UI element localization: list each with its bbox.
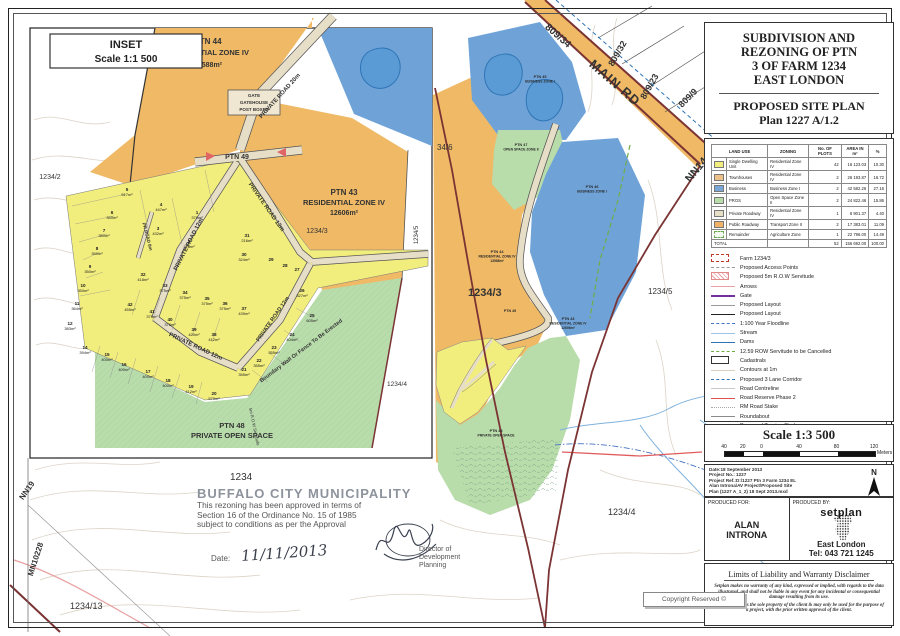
dam-shape-1 xyxy=(485,54,523,95)
legend-item: Stream xyxy=(711,328,887,337)
table-row: RemainderAgriculture Zone122 796.0014.49 xyxy=(712,230,887,240)
swatch-business xyxy=(714,185,724,192)
inset-plan: GATE GATEHOUSE POST BOXES PTN 44 RESIDEN… xyxy=(30,16,432,458)
dam-shape-2 xyxy=(526,79,562,120)
zone-label-ptn48: PTN 48 xyxy=(490,429,503,433)
table-row: Single Dwelling UnitResidential Zone IV4… xyxy=(712,158,887,171)
scale-bar-segments xyxy=(724,451,876,457)
parcel-1234-3: 1234/3 xyxy=(468,287,502,299)
parcel-1234-5: 1234/5 xyxy=(648,287,673,296)
lot-area: 400m² xyxy=(142,374,154,379)
lot-area: 324m² xyxy=(238,257,250,262)
arrows-symbol xyxy=(711,286,735,287)
scale-tick: 20 xyxy=(740,444,746,450)
legend-item: Dams xyxy=(711,338,887,347)
scale-panel: Scale 1:3 500 40 20 0 40 80 120 Meters xyxy=(704,424,894,462)
lot-area: 327m² xyxy=(296,293,308,298)
lot-area: 400m² xyxy=(101,357,113,362)
site-plan-document: MAIN RD 809/34 809/32 809/23 809/9 NN14 … xyxy=(0,0,900,636)
plan-title-line: SUBDIVISION AND xyxy=(705,31,893,45)
zone-label-ptn49: PTN 49 xyxy=(504,309,516,313)
lot-number: 29 xyxy=(268,257,274,262)
lot-area: 375m² xyxy=(179,295,191,300)
gate-label: GATE xyxy=(248,93,260,98)
title-divider xyxy=(719,93,879,94)
zone-label-ptn45: PTN 45 xyxy=(534,75,547,79)
zone-label-ptn47-2: OPEN SPACE ZONE II xyxy=(503,148,538,152)
scale-tick: 40 xyxy=(721,444,727,450)
legend-item: Proposed Layout xyxy=(711,310,887,319)
col-pct: % xyxy=(869,145,887,158)
swatch-private-roadway xyxy=(714,210,724,217)
plan-title-line: REZONING OF PTN xyxy=(705,45,893,59)
lot-area: 439m² xyxy=(238,311,250,316)
table-row: Private RoadwayResidential Zone IV16 901… xyxy=(712,207,887,220)
lot-area: 379m² xyxy=(191,215,203,220)
swatch-townhouses xyxy=(714,174,724,181)
legend-item: Proposed Layout xyxy=(711,300,887,309)
inset-ptn43-area: 12606m² xyxy=(330,210,359,217)
table-row: Public RoadwayTransport Zone II217 383.0… xyxy=(712,220,887,230)
lot-area: 404m² xyxy=(286,337,298,342)
produced-panel: PRODUCED FOR: ALAN INTRONA PRODUCED BY: … xyxy=(704,497,894,561)
zone-label-ptn48-2: PRIVATE OPEN SPACE xyxy=(477,434,515,438)
legend-item: Proposed 5m R.O.W Servitude xyxy=(711,273,887,282)
lot-area: 605m² xyxy=(306,318,318,323)
zone-label-ptn47: PTN 47 xyxy=(515,143,528,147)
stream-symbol xyxy=(711,333,735,334)
road-nn19: NN19 xyxy=(17,479,36,501)
scale-tick: 80 xyxy=(834,444,840,450)
swatch-public-roadway xyxy=(714,221,724,228)
title-block: SUBDIVISION AND REZONING OF PTN 3 OF FAR… xyxy=(704,22,894,134)
inset-1234-4: 1234/4 xyxy=(387,381,407,388)
produced-for: PRODUCED FOR: ALAN INTRONA xyxy=(705,498,790,560)
lot-area: 517m² xyxy=(121,192,133,197)
legend-item: Roundabout xyxy=(711,412,887,421)
road-reserve-symbol xyxy=(711,398,735,399)
contours-symbol xyxy=(711,370,735,371)
road-centreline-symbol xyxy=(711,388,735,389)
table-row: TownhousesResidential Zone IV226 193.871… xyxy=(712,171,887,184)
lot-number: 28 xyxy=(282,263,288,268)
access-points-symbol xyxy=(711,267,735,268)
legend-item: 12.59 ROW Servitude to be Cancelled xyxy=(711,347,887,356)
client-name: INTRONA xyxy=(705,530,789,540)
produced-by: PRODUCED BY: setplan East London Tel: 04… xyxy=(790,498,893,560)
lot-number: 27 xyxy=(294,267,300,272)
legend-item: Proposed 3 Lane Corridor xyxy=(711,375,887,384)
parcel-809-9: 809/9 xyxy=(676,86,699,109)
inset-1234-2: 1234/2 xyxy=(39,174,61,181)
zone-label-ptn46: PTN 46 xyxy=(586,185,599,189)
produced-for-label: PRODUCED FOR: xyxy=(705,498,789,506)
scale-tick: 40 xyxy=(796,444,802,450)
legend-item: Arrows xyxy=(711,282,887,291)
lot-area: 579m² xyxy=(208,396,220,401)
lot-area: 355m² xyxy=(253,363,265,368)
lot-area: 394m² xyxy=(79,350,91,355)
producer-tel: Tel: 043 721 1245 xyxy=(790,549,893,558)
zone-label-ptn45-2: BUSINESS ZONE I xyxy=(525,80,555,84)
scale-unit: Meters xyxy=(877,450,892,456)
lot-area: 350m² xyxy=(77,288,89,293)
legend-item: Road Centreline xyxy=(711,384,887,393)
maroon-corner-line xyxy=(10,585,60,632)
inset-ptn43-zone: RESIDENTIAL ZONE IV xyxy=(303,198,385,207)
swatch-remainder xyxy=(714,231,724,238)
gatehouse-label: GATEHOUSE xyxy=(240,100,268,105)
setplan-logo: setplan xyxy=(790,506,893,540)
project-info-panel: Date:18 September 2013 Project No.: 1227… xyxy=(704,464,894,497)
inset-dam xyxy=(361,48,401,88)
col-land-use: LAND USE xyxy=(712,145,768,158)
north-arrow: N xyxy=(859,467,889,494)
inset-ptn48-label: PTN 48 xyxy=(219,421,244,430)
legend-item: Farm 1234/3 xyxy=(711,254,887,263)
legend-item: Road Reserve Phase 2 xyxy=(711,393,887,402)
lot-area: 350m² xyxy=(91,251,103,256)
lot-area: 328m² xyxy=(183,244,195,249)
legend-item-list: Farm 1234/3 Proposed Access Points Propo… xyxy=(711,254,887,431)
lot-area: 355m² xyxy=(268,350,280,355)
scale-title: Scale 1:3 500 xyxy=(705,427,893,443)
dams-symbol xyxy=(711,342,735,343)
zone-label-ptn46-2: BUSINESS ZONE I xyxy=(577,190,607,194)
zone-label-ptn44: PTN 44 xyxy=(491,250,505,254)
legend-panel: LAND USE ZONING No. OF PLOTS AREA IN m² … xyxy=(704,138,894,422)
row-cancel-symbol xyxy=(711,351,735,352)
lot-area: 350m² xyxy=(84,269,96,274)
plan-number: Plan 1227 A/1.2 xyxy=(705,113,893,127)
marsh-hatch xyxy=(452,438,560,505)
farm-boundary-symbol xyxy=(711,254,729,262)
cadastrals-symbol xyxy=(711,356,729,364)
cadastral-diag-line xyxy=(28,505,170,636)
zone-label-ptn44-3: 13588m² xyxy=(490,259,504,263)
legend-item: Gate xyxy=(711,291,887,300)
proposed-layout-symbol xyxy=(711,314,735,315)
proposed-layout-symbol xyxy=(711,305,735,306)
table-row: BusinessBusiness Zone I242 582.2627.16 xyxy=(712,184,887,194)
legend-item: Proposed Access Points xyxy=(711,263,887,272)
lot-area: 455m² xyxy=(124,307,136,312)
legend-item: RM Road Stake xyxy=(711,403,887,412)
parcel-1234-13: 1234/13 xyxy=(70,601,103,611)
col-area: AREA IN m² xyxy=(841,145,868,158)
gate-symbol xyxy=(711,295,735,297)
inset-1234-5: 1234/5 xyxy=(414,225,420,244)
legend-item: Cadastrals xyxy=(711,356,887,365)
land-use-table: LAND USE ZONING No. OF PLOTS AREA IN m² … xyxy=(711,144,887,248)
table-header-row: LAND USE ZONING No. OF PLOTS AREA IN m² … xyxy=(712,145,887,158)
lot-area: 375m² xyxy=(159,288,171,293)
lot-area: 364m² xyxy=(71,306,83,311)
scale-tick: 0 xyxy=(760,444,763,450)
inset-title: INSET xyxy=(110,39,143,51)
three-lane-corridor-symbol xyxy=(711,379,735,380)
plan-title-line: EAST LONDON xyxy=(705,73,893,87)
table-row: PROSOpen Space Zone II224 822.4615.86 xyxy=(712,194,887,207)
zone-label-ptn44-2: RESIDENTIAL ZONE IV xyxy=(478,255,516,259)
lot-area: 375m² xyxy=(219,306,231,311)
lot-area: 447m² xyxy=(155,207,167,212)
north-label: N xyxy=(871,468,877,477)
col-zoning: ZONING xyxy=(768,145,809,158)
parcel-1234-4: 1234/4 xyxy=(608,507,636,517)
lot-area: 432m² xyxy=(152,231,164,236)
inset-ptn43-label: PTN 43 xyxy=(330,188,358,197)
inset-scale: Scale 1:1 500 xyxy=(95,54,158,65)
inset-ptn49-label: PTN 49 xyxy=(225,154,249,161)
plan-title-line: 3 OF FARM 1234 xyxy=(705,59,893,73)
roundabout-symbol xyxy=(711,416,735,417)
lot-area: 355m² xyxy=(238,372,250,377)
lot-area: 375m² xyxy=(146,314,158,319)
lot-area: 412m² xyxy=(208,337,220,342)
inset-ptn48-zone: PRIVATE OPEN SPACE xyxy=(191,431,273,440)
rm-road-stake-symbol xyxy=(711,407,735,408)
lot-area: 400m² xyxy=(162,383,174,388)
lot-area: 418m² xyxy=(137,277,149,282)
lot-area: 420m² xyxy=(188,332,200,337)
produced-by-label: PRODUCED BY: xyxy=(790,498,893,506)
copyright-box: Copyright Reserved © xyxy=(643,592,745,607)
table-total-row: TOTAL52156 692.00100.00 xyxy=(712,240,887,248)
lot-area: 375m² xyxy=(201,301,213,306)
lot-area: 350m² xyxy=(106,215,118,220)
lot-area: 375m² xyxy=(164,322,176,327)
lot-area: 383m² xyxy=(64,326,76,331)
swatch-single-dwelling xyxy=(714,161,724,168)
road-reserve-line xyxy=(562,452,702,456)
road-mn10228: MN10228 xyxy=(26,541,45,577)
lot-area: 350m² xyxy=(98,233,110,238)
swatch-pros xyxy=(714,197,724,204)
lot-area: 412m² xyxy=(185,389,197,394)
lot-area: 400m² xyxy=(118,367,130,372)
floodline-symbol xyxy=(711,323,735,324)
col-plots: No. OF PLOTS xyxy=(809,145,842,158)
disclaimer-title: Limits of Liability and Warranty Disclai… xyxy=(724,570,873,581)
plan-subtitle: PROPOSED SITE PLAN xyxy=(705,99,893,113)
lot-area: 216m² xyxy=(241,238,253,243)
row-servitude-symbol xyxy=(711,272,729,280)
three-lane-corridor-line xyxy=(556,0,725,148)
legend-item: 1:100 Year Floodline xyxy=(711,319,887,328)
scale-bar: 40 20 0 40 80 120 Meters xyxy=(724,444,874,458)
parcel-1234: 1234 xyxy=(230,472,253,483)
parcel-34-6: 34/6 xyxy=(437,143,453,152)
zone-label-ptn43-2: RESIDENTIAL ZONE IV xyxy=(549,322,587,326)
legend-item: Contours at 1m xyxy=(711,366,887,375)
zone-label-ptn43-3: 12606m² xyxy=(561,326,575,330)
inset-1234-3: 1234/3 xyxy=(306,228,328,235)
setplan-logo-text: setplan xyxy=(820,507,862,519)
zone-label-ptn43: PTN 43 xyxy=(562,317,575,321)
client-name: ALAN xyxy=(705,520,789,530)
project-ref: Plan (1227 A_1_2) 18 Sept 2013.mxd xyxy=(709,489,859,494)
